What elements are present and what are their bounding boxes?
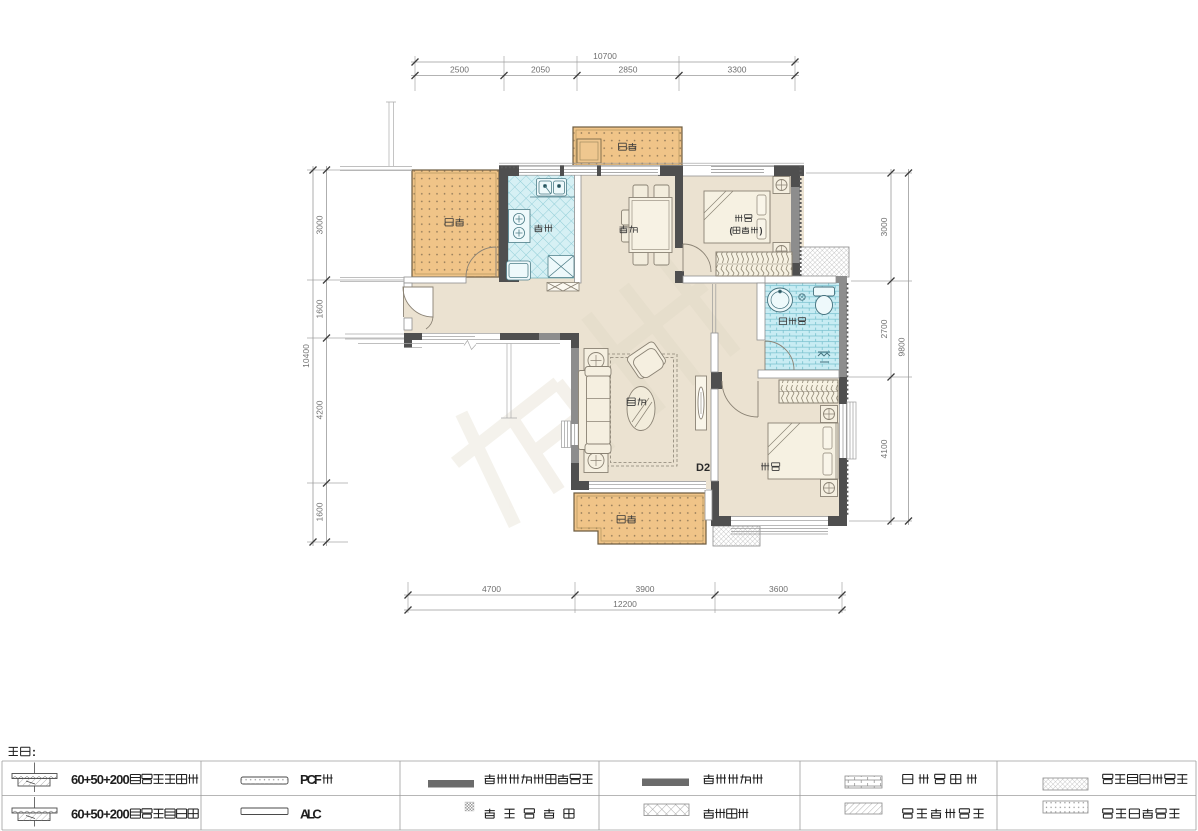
svg-text:3000: 3000 [879,217,889,236]
svg-text:2050: 2050 [531,65,550,75]
svg-text:D2: D2 [696,462,710,474]
svg-text:60+50+200: 60+50+200 [71,807,130,822]
svg-text:10400: 10400 [301,344,311,368]
svg-text:60+50+200: 60+50+200 [71,772,130,787]
svg-text:): ) [760,226,763,236]
svg-text:9800: 9800 [897,337,907,356]
svg-text:2850: 2850 [619,65,638,75]
svg-text:2700: 2700 [879,319,889,338]
svg-text:4100: 4100 [879,439,889,458]
svg-text:12200: 12200 [613,599,637,609]
svg-text:PCF: PCF [300,772,322,787]
svg-text:3900: 3900 [636,584,655,594]
svg-text:4200: 4200 [315,400,325,419]
svg-text:1600: 1600 [315,502,325,521]
svg-text:(: ( [730,226,733,236]
svg-text:10700: 10700 [593,51,617,61]
svg-text:2500: 2500 [450,65,469,75]
svg-text:3600: 3600 [769,584,788,594]
svg-text:3300: 3300 [728,65,747,75]
svg-text:4700: 4700 [482,584,501,594]
svg-text:ALC: ALC [300,807,322,822]
svg-text:1600: 1600 [315,299,325,318]
svg-text::: : [32,745,36,759]
svg-text:3000: 3000 [315,215,325,234]
